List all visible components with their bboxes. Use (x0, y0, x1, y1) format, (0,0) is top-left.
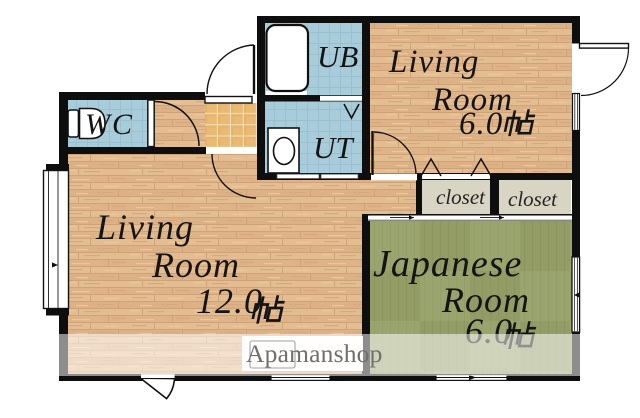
svg-text:UB: UB (317, 39, 358, 74)
svg-text:UT: UT (313, 130, 355, 165)
svg-text:closet: closet (436, 185, 486, 209)
svg-text:Room: Room (151, 245, 240, 285)
svg-text:Living: Living (388, 44, 479, 80)
svg-text:6.0: 6.0 (459, 106, 503, 142)
svg-text:closet: closet (508, 187, 558, 211)
svg-text:WC: WC (85, 108, 134, 141)
svg-text:Japanese: Japanese (373, 243, 522, 285)
svg-text:Living: Living (95, 207, 194, 247)
svg-text:Apamanshop: Apamanshop (246, 339, 383, 368)
